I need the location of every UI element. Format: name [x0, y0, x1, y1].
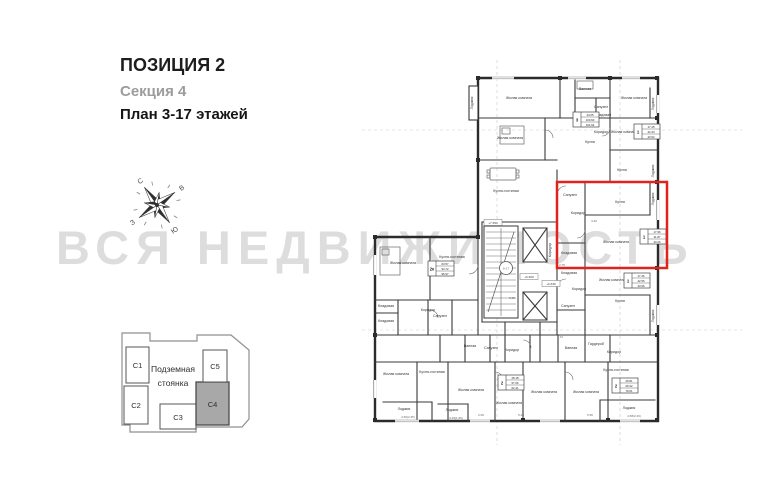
level-mark-label: +6.600	[524, 275, 534, 279]
dimension-label: 5.20	[518, 413, 524, 417]
svg-text:57.06: 57.06	[512, 381, 519, 385]
svg-text:69.32: 69.32	[626, 384, 633, 388]
room-label: Санузел	[594, 105, 608, 109]
svg-text:100.60: 100.60	[586, 118, 595, 122]
plan-subtitle: План 3-17 этажей	[120, 103, 248, 126]
dimension-label: 5.56	[587, 413, 593, 417]
svg-text:43.96: 43.96	[638, 284, 645, 288]
room-label: Лоджия	[470, 97, 474, 110]
room-label: Кухня	[585, 140, 595, 144]
apartment-info: 117.9641.8743.26	[640, 229, 666, 244]
svg-text:79.61: 79.61	[626, 389, 633, 393]
site-section-c2: С2	[124, 386, 148, 424]
room-label: Кладовая	[378, 304, 394, 308]
room-label: Жилая комната	[458, 388, 484, 392]
dimension-label: 2.75	[559, 263, 565, 267]
room-label: Гардероб	[588, 342, 604, 346]
room-label: Жилая комната	[531, 390, 557, 394]
section-subtitle: Секция 4	[120, 80, 248, 103]
room-label: Кухня	[615, 299, 625, 303]
svg-text:96.97: 96.97	[442, 272, 449, 276]
room-label: Жилая комната	[497, 136, 523, 140]
room-label: Жилая комната	[573, 390, 599, 394]
underground-parking-label-1: Подземная	[151, 364, 195, 374]
svg-text:101.94: 101.94	[586, 123, 595, 127]
apartment-info: 228.1857.0662.41	[498, 375, 524, 390]
door-arcs	[430, 128, 610, 380]
svg-text:43.52: 43.52	[648, 135, 655, 139]
room-label: Лоджия	[651, 165, 655, 178]
room-label: Лоджия	[623, 406, 636, 410]
site-section-c1: С1	[126, 347, 149, 383]
page: ПОЗИЦИЯ 2 Секция 4 План 3-17 этажей ВСЯ …	[0, 0, 784, 500]
svg-text:17.96: 17.96	[654, 230, 661, 234]
svg-text:62.41: 62.41	[512, 386, 519, 390]
floor-plan: 6-17 ЛоджияЖилая комнатаВаннаяСанузелЖил…	[362, 60, 742, 445]
room-label: Санузел	[561, 304, 575, 308]
apartment-info: 117.4542.3343.52	[634, 124, 660, 139]
svg-text:63.57: 63.57	[442, 262, 449, 266]
room-label: Жилая комната	[611, 130, 637, 134]
elevator-icon	[523, 228, 547, 262]
room-label: Коридор	[572, 287, 586, 291]
apartment-info: 117.4642.5643.96	[624, 273, 650, 288]
compass-west-label: З	[129, 219, 136, 227]
svg-text:17.45: 17.45	[648, 125, 655, 129]
room-label: Лоджия	[651, 310, 655, 323]
floor-range-label: 6-17	[503, 267, 509, 271]
svg-text:С5: С5	[210, 362, 220, 371]
room-label: Коридор	[505, 348, 519, 352]
svg-text:28.18: 28.18	[512, 376, 519, 380]
room-label: Кладовая	[561, 271, 577, 275]
dimension-label: 3.40	[591, 219, 597, 223]
room-label: Кухня-гостиная	[439, 255, 464, 259]
room-label: Ванная	[464, 344, 476, 348]
room-label: Лоджия	[651, 193, 655, 206]
room-label: Жилая комната	[621, 96, 647, 100]
svg-text:44.05: 44.05	[587, 113, 594, 117]
room-label: Жилая комната	[383, 372, 409, 376]
room-label: Коридор	[594, 130, 608, 134]
room-label: Санузел	[563, 193, 577, 197]
room-label: Лоджия	[446, 408, 459, 412]
apartment-info: 2к63.5794.7296.97	[428, 261, 454, 276]
room-label: Ванная	[565, 346, 577, 350]
dimension-label: 4.69(2.35)	[401, 415, 415, 419]
site-section-c5: С5	[203, 350, 227, 382]
level-mark-label: +7.650	[488, 221, 498, 225]
page-title: ПОЗИЦИЯ 2	[120, 52, 248, 80]
site-section-c3: С3	[160, 404, 196, 429]
room-label: Лоджия	[651, 98, 655, 111]
drawing-area: С В Ю З С1 С2 С3 С4	[0, 0, 784, 500]
level-mark-label: +6.630	[546, 282, 556, 286]
room-label: Санузел	[433, 314, 447, 318]
svg-text:17.46: 17.46	[638, 274, 645, 278]
room-label: Кухня-гостиная	[419, 370, 444, 374]
room-label: Жилая комната	[496, 401, 522, 405]
svg-text:42.33: 42.33	[648, 130, 655, 134]
room-label: Коридор	[607, 350, 621, 354]
apartment-info: 229.8169.3279.61	[612, 378, 638, 393]
room-label: Кухня	[617, 168, 627, 172]
underground-parking-label-2: стоянка	[158, 378, 189, 388]
svg-text:41.87: 41.87	[654, 235, 661, 239]
svg-text:С4: С4	[208, 400, 218, 409]
svg-text:С2: С2	[131, 401, 141, 410]
room-label: Кухня-гостиная	[603, 368, 628, 372]
dimension-label: 5.68	[509, 296, 515, 300]
dimension-label: 2.06	[478, 413, 484, 417]
svg-text:94.72: 94.72	[442, 267, 449, 271]
compass-north-label: С	[137, 177, 145, 186]
compass-rose-icon: С В Ю З	[112, 160, 203, 252]
room-label: Кухня	[615, 200, 625, 204]
compass-south-label: Ю	[170, 226, 180, 236]
title-block: ПОЗИЦИЯ 2 Секция 4 План 3-17 этажей	[120, 52, 248, 126]
dimension-label: 4.58(2.29)	[627, 414, 641, 418]
svg-text:43.26: 43.26	[654, 240, 661, 244]
room-label: Жилая комната	[390, 261, 416, 265]
room-label: Коридор	[421, 308, 435, 312]
room-label: Жилая комната	[506, 96, 532, 100]
room-label: Жилая комната	[599, 278, 625, 282]
site-section-c4-highlighted[interactable]: С4	[196, 382, 229, 425]
room-label: Жилая комната	[603, 240, 629, 244]
room-label: Коридор	[548, 243, 552, 257]
svg-text:С3: С3	[173, 413, 183, 422]
room-label: Кухня-гостиная	[493, 189, 518, 193]
dimension-label: 3.29(1.65)	[449, 416, 463, 420]
room-label: Санузел	[484, 346, 498, 350]
room-label: Кладовая	[561, 251, 577, 255]
apartment-info: 344.05100.60101.94	[573, 112, 599, 127]
compass-east-label: В	[178, 184, 186, 193]
site-plan: С1 С2 С3 С4 С5 Подземная стоянка	[122, 333, 249, 432]
svg-text:29.81: 29.81	[626, 379, 633, 383]
svg-text:42.56: 42.56	[638, 279, 645, 283]
svg-text:С1: С1	[133, 361, 143, 370]
room-label: Лоджия	[398, 407, 411, 411]
dimension-label: 3.72	[557, 335, 563, 339]
room-label: Коридор	[571, 211, 585, 215]
elevator-icon	[523, 292, 547, 320]
room-label: Кладовая	[378, 319, 394, 323]
room-label: Ванная	[579, 87, 591, 91]
